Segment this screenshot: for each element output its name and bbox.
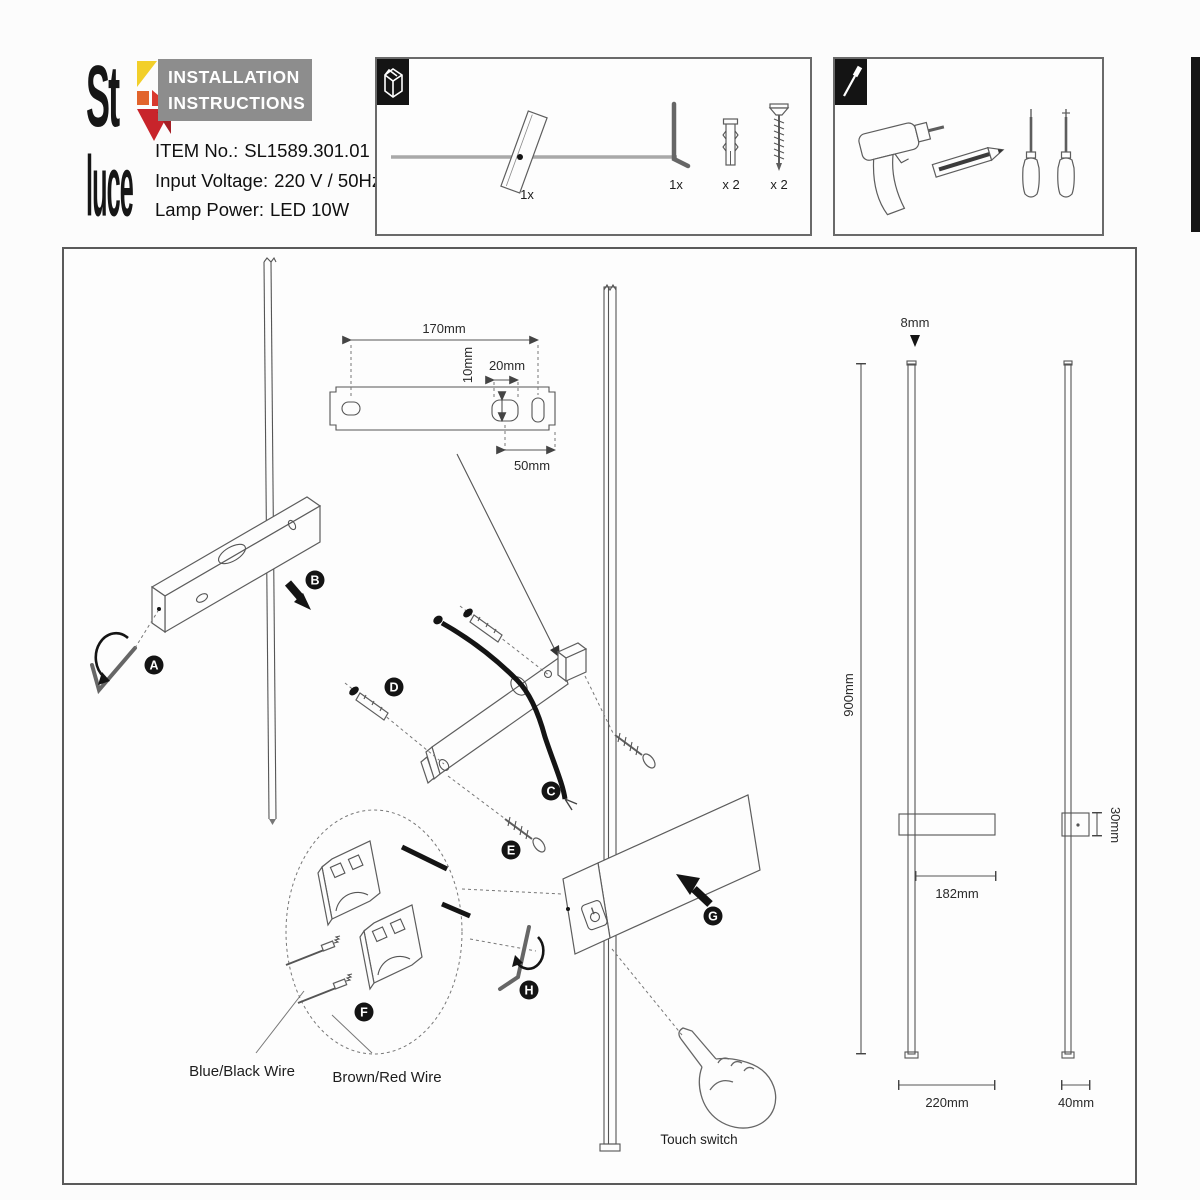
touch-switch-label: Touch switch	[660, 1132, 737, 1147]
step-b-badge: B	[306, 571, 325, 590]
plate-edge-dim: 50mm	[514, 458, 550, 473]
svg-text:G: G	[708, 910, 718, 924]
product-info: ITEM No.:SL1589.301.01 Input Voltage:220…	[155, 136, 387, 225]
step-a-badge: A	[145, 656, 164, 675]
diameter-pointer	[910, 335, 920, 347]
plate-hole-width-dim: 20mm	[489, 358, 525, 373]
voltage-row: Input Voltage:220 V / 50Hz	[155, 166, 387, 196]
svg-text:D: D	[389, 681, 398, 695]
lamp-body-left	[152, 497, 320, 632]
overall-width-dim: 220mm	[925, 1095, 968, 1110]
main-diagram-box: 170mm 10mm 20mm 50mm	[62, 247, 1137, 1185]
svg-text:E: E	[507, 844, 515, 858]
step-g-badge: G	[704, 907, 723, 926]
body-height-dim: 30mm	[1108, 807, 1123, 843]
voltage-value: 220 V / 50Hz	[274, 170, 381, 191]
black-wire-stub-2	[442, 904, 470, 916]
step-e-badge: E	[502, 841, 521, 860]
step-d-badge: D	[385, 678, 404, 697]
banner-line-1: INSTALLATION	[168, 64, 312, 90]
wire-label-left: Blue/Black Wire	[189, 1063, 295, 1080]
screw-qty: x 2	[770, 177, 787, 192]
voltage-label: Input Voltage:	[155, 170, 268, 191]
step-f-badge: F	[355, 1003, 374, 1022]
lamp-body-right	[563, 795, 760, 1035]
step-c-badge: C	[542, 782, 561, 801]
instruction-sheet: St luce INSTALLATION INSTRUCTIONS ITEM N…	[0, 0, 1200, 1200]
dimension-views: 8mm 900mm 182mm 220mm 30mm 40m	[841, 315, 1123, 1110]
plate-hole-height-dim: 10mm	[460, 347, 475, 383]
page-edge-strip	[1191, 57, 1200, 232]
depth-dim: 40mm	[1058, 1095, 1094, 1110]
logo-text-st: St	[86, 54, 118, 141]
hand-icon	[679, 1028, 776, 1128]
svg-text:F: F	[360, 1006, 368, 1020]
svg-text:A: A	[149, 659, 158, 673]
hex-key-a-icon	[92, 611, 158, 690]
height-dim: 900mm	[841, 673, 856, 716]
stripped-wire-1	[286, 936, 340, 965]
tools-needed-box	[833, 57, 1104, 236]
svg-text:C: C	[546, 785, 555, 799]
body-width-dim: 182mm	[935, 886, 978, 901]
wall-anchor-icon	[723, 119, 738, 165]
plate-width-dim: 170mm	[422, 321, 465, 336]
hex-key-icon	[674, 104, 688, 166]
terminal-block-2	[360, 905, 422, 989]
black-wire-stub-1	[402, 847, 447, 869]
power-value: LED 10W	[270, 199, 349, 220]
installation-diagram: 170mm 10mm 20mm 50mm	[64, 249, 1135, 1183]
screw-icon	[770, 104, 788, 171]
svg-text:H: H	[524, 984, 533, 998]
banner-line-2: INSTRUCTIONS	[168, 90, 312, 116]
svg-text:B: B	[310, 574, 319, 588]
item-no-row: ITEM No.:SL1589.301.01	[155, 136, 387, 166]
wire-label-leader-left	[256, 991, 304, 1053]
mounting-screw-right-icon	[585, 676, 657, 770]
power-label: Lamp Power:	[155, 199, 264, 220]
package-contents-box: 1x 1x x 2 x 2	[375, 57, 812, 236]
step-b-arrow-icon	[288, 583, 311, 610]
lamp-part-icon	[391, 111, 677, 193]
item-no-value: SL1589.301.01	[244, 140, 370, 161]
wall-pole	[600, 285, 620, 1151]
step-h-badge: H	[520, 981, 539, 1000]
hex-key-qty: 1x	[669, 177, 683, 192]
diameter-dim: 8mm	[901, 315, 930, 330]
power-row: Lamp Power:LED 10W	[155, 195, 387, 225]
flat-screwdriver-icon	[1023, 109, 1040, 197]
mounting-plate-drawing: 170mm 10mm 20mm 50mm	[330, 321, 560, 658]
stripped-wire-2	[298, 974, 352, 1003]
title-banner: INSTALLATION INSTRUCTIONS	[158, 59, 312, 121]
mounting-screw-e-icon	[448, 776, 547, 854]
wire-label-right: Brown/Red Wire	[332, 1069, 441, 1086]
item-no-label: ITEM No.:	[155, 140, 238, 161]
terminal-block-1	[318, 841, 380, 925]
logo-text-luce: luce	[86, 144, 133, 229]
anchor-qty: x 2	[722, 177, 739, 192]
pencil-icon	[932, 144, 1005, 177]
hex-key-h-icon	[500, 927, 543, 989]
lamp-qty: 1x	[520, 187, 534, 202]
phillips-screwdriver-icon	[1058, 109, 1075, 197]
